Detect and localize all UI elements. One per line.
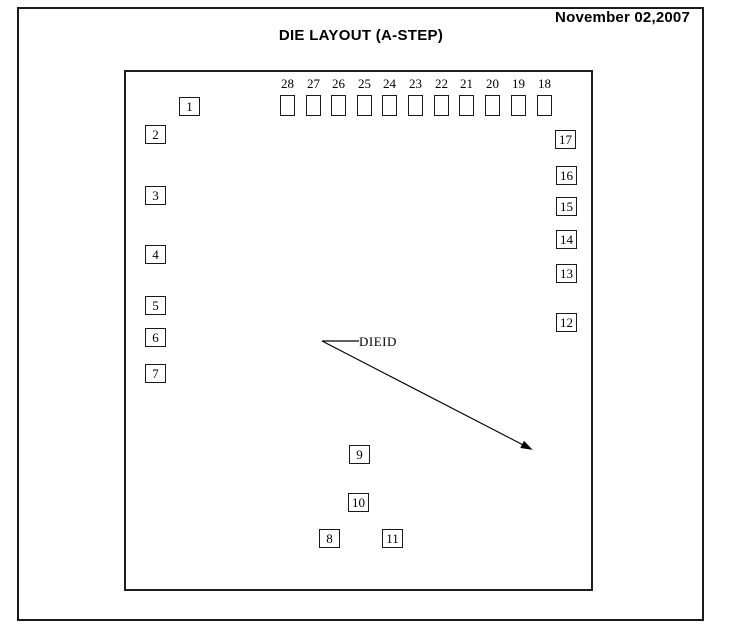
pad-number-label: 23	[403, 76, 429, 91]
pad-2: 2	[145, 125, 166, 144]
pad-number-label: 27	[301, 76, 327, 91]
pad-square	[537, 95, 552, 116]
pad-7: 7	[145, 364, 166, 383]
pad-13: 13	[556, 264, 577, 283]
pad-number-label: 26	[326, 76, 352, 91]
pad-15: 15	[556, 197, 577, 216]
pad-number-label: 19	[506, 76, 532, 91]
top-pad-26: 26	[326, 76, 352, 116]
pad-number-label: 21	[454, 76, 480, 91]
pad-square	[434, 95, 449, 116]
pad-6: 6	[145, 328, 166, 347]
pad-number-label: 24	[377, 76, 403, 91]
pad-16: 16	[556, 166, 577, 185]
top-pad-23: 23	[403, 76, 429, 116]
top-pad-24: 24	[377, 76, 403, 116]
pad-5: 5	[145, 296, 166, 315]
pad-3: 3	[145, 186, 166, 205]
pad-square	[306, 95, 321, 116]
top-pad-19: 19	[506, 76, 532, 116]
pad-square	[331, 95, 346, 116]
pad-number-label: 22	[429, 76, 455, 91]
pad-square	[280, 95, 295, 116]
page-title: DIE LAYOUT (A-STEP)	[0, 27, 722, 44]
top-pad-27: 27	[301, 76, 327, 116]
die-outline	[124, 70, 593, 591]
pad-8: 8	[319, 529, 340, 548]
pad-square	[357, 95, 372, 116]
top-pad-18: 18	[532, 76, 558, 116]
pad-square	[408, 95, 423, 116]
pad-number-label: 18	[532, 76, 558, 91]
pad-square	[459, 95, 474, 116]
top-pad-25: 25	[352, 76, 378, 116]
pad-square	[511, 95, 526, 116]
top-pad-28: 28	[275, 76, 301, 116]
pad-1: 1	[179, 97, 200, 116]
top-pad-20: 20	[480, 76, 506, 116]
pad-number-label: 20	[480, 76, 506, 91]
pad-10: 10	[348, 493, 369, 512]
top-pad-21: 21	[454, 76, 480, 116]
dieid-label: DIEID	[359, 334, 397, 350]
die-layout-page: November 02,2007 DIE LAYOUT (A-STEP) 282…	[0, 0, 750, 629]
pad-4: 4	[145, 245, 166, 264]
pad-11: 11	[382, 529, 403, 548]
pad-number-label: 25	[352, 76, 378, 91]
pad-14: 14	[556, 230, 577, 249]
pad-9: 9	[349, 445, 370, 464]
date-label: November 02,2007	[555, 9, 690, 26]
pad-square	[382, 95, 397, 116]
pad-12: 12	[556, 313, 577, 332]
pad-number-label: 28	[275, 76, 301, 91]
top-pad-22: 22	[429, 76, 455, 116]
pad-17: 17	[555, 130, 576, 149]
pad-square	[485, 95, 500, 116]
